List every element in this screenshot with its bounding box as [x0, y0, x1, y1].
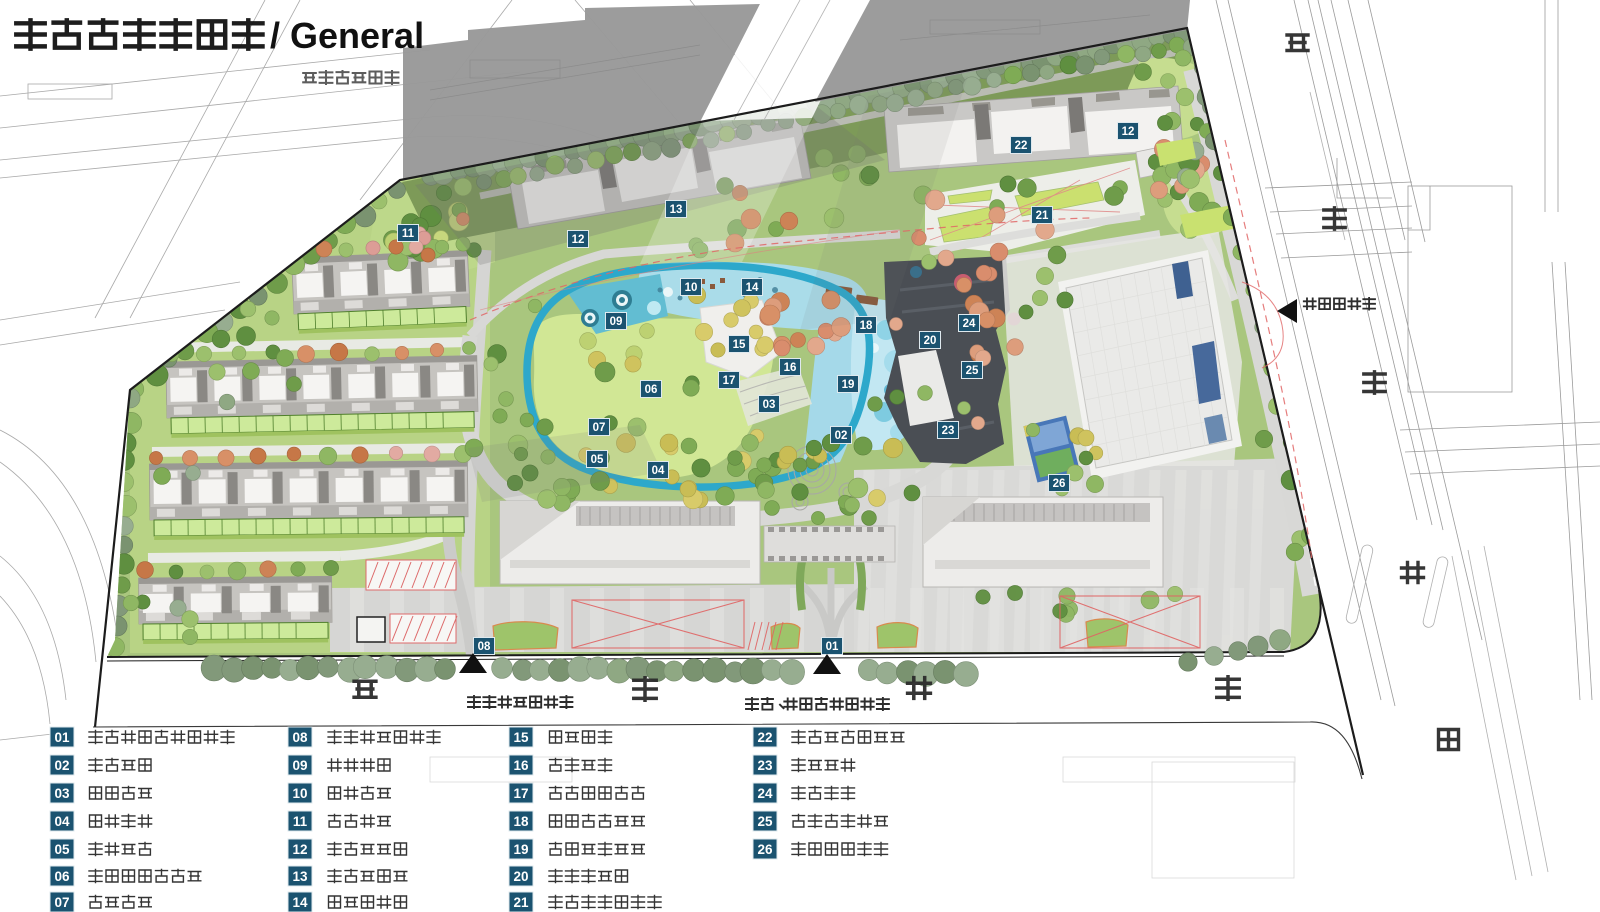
- svg-text:10: 10: [292, 786, 307, 801]
- svg-text:14: 14: [746, 282, 759, 294]
- svg-text:12: 12: [292, 842, 307, 857]
- svg-text:20: 20: [924, 335, 937, 347]
- svg-text:02: 02: [835, 430, 848, 442]
- svg-text:15: 15: [733, 339, 746, 351]
- svg-text:22: 22: [757, 730, 772, 745]
- svg-text:24: 24: [963, 318, 976, 330]
- svg-text:04: 04: [54, 814, 70, 829]
- svg-text:07: 07: [593, 422, 606, 434]
- svg-text:13: 13: [670, 204, 683, 216]
- svg-text:09: 09: [610, 316, 623, 328]
- svg-text:20: 20: [513, 869, 528, 884]
- svg-text:01: 01: [826, 641, 839, 653]
- svg-text:02: 02: [54, 758, 69, 773]
- svg-text:06: 06: [645, 384, 658, 396]
- svg-text:08: 08: [478, 641, 491, 653]
- svg-text:26: 26: [1053, 478, 1066, 490]
- svg-text:03: 03: [54, 786, 70, 801]
- svg-text:07: 07: [54, 895, 69, 910]
- svg-text:11: 11: [293, 814, 308, 829]
- svg-text:21: 21: [513, 895, 529, 910]
- svg-text:26: 26: [757, 842, 773, 857]
- svg-text:03: 03: [763, 399, 776, 411]
- svg-text:16: 16: [513, 758, 529, 773]
- svg-text:18: 18: [513, 814, 529, 829]
- svg-text:/ General: / General: [270, 15, 424, 56]
- svg-text:10: 10: [685, 282, 698, 294]
- svg-text:14: 14: [292, 895, 308, 910]
- svg-text:23: 23: [942, 425, 955, 437]
- svg-text:05: 05: [591, 454, 604, 466]
- svg-text:19: 19: [513, 842, 528, 857]
- svg-text:05: 05: [54, 842, 70, 857]
- svg-text:11: 11: [402, 228, 415, 240]
- svg-text:24: 24: [757, 786, 773, 801]
- svg-text:25: 25: [757, 814, 773, 829]
- svg-text:12: 12: [1122, 126, 1135, 138]
- svg-text:12: 12: [572, 234, 585, 246]
- svg-text:21: 21: [1036, 210, 1049, 222]
- svg-text:04: 04: [652, 465, 665, 477]
- svg-text:17: 17: [513, 786, 528, 801]
- svg-text:22: 22: [1015, 140, 1028, 152]
- svg-text:19: 19: [842, 379, 855, 391]
- svg-text:01: 01: [54, 730, 70, 745]
- svg-text:13: 13: [292, 869, 308, 884]
- svg-text:06: 06: [54, 869, 70, 884]
- svg-text:09: 09: [292, 758, 307, 773]
- svg-text:15: 15: [513, 730, 529, 745]
- svg-text:17: 17: [723, 375, 736, 387]
- svg-text:25: 25: [966, 365, 979, 377]
- svg-text:08: 08: [292, 730, 308, 745]
- svg-text:16: 16: [784, 362, 797, 374]
- svg-text:18: 18: [860, 320, 873, 332]
- svg-text:23: 23: [757, 758, 773, 773]
